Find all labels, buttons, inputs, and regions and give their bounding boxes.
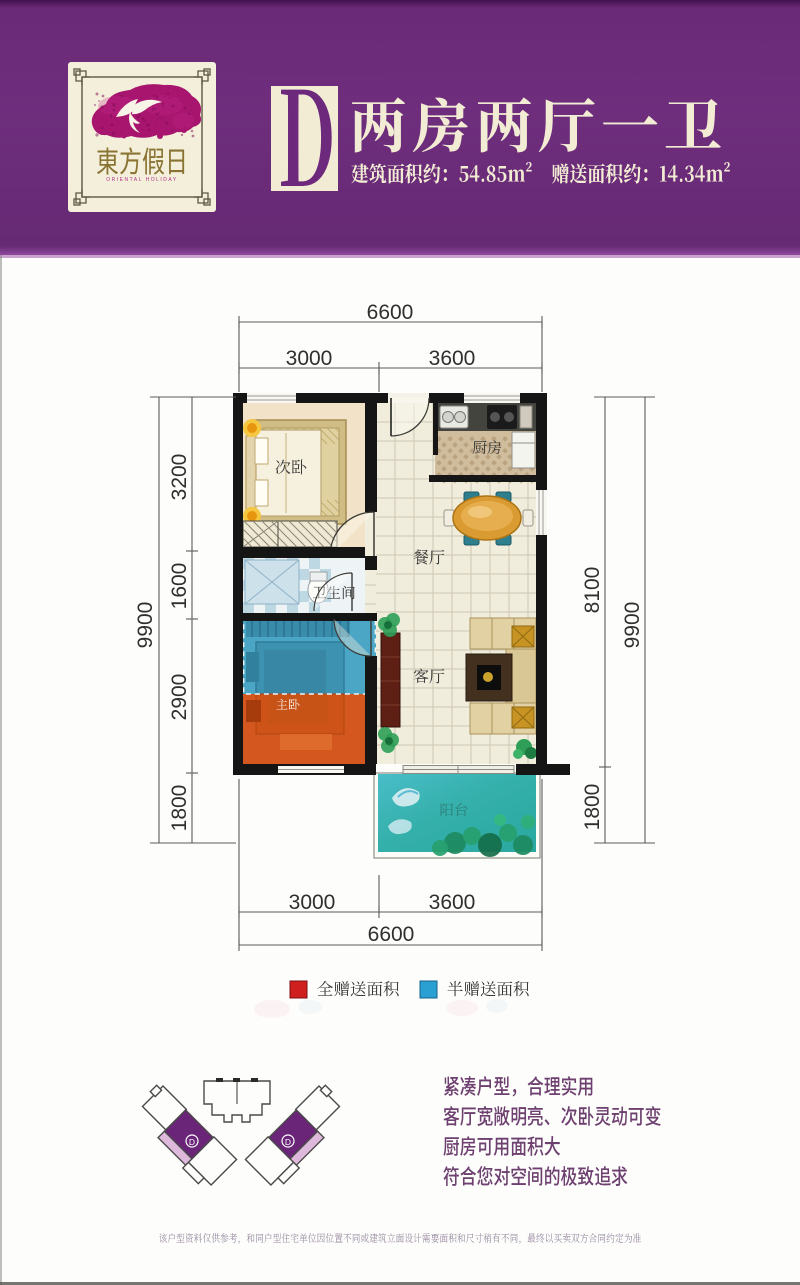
svg-text:1600: 1600	[168, 563, 191, 610]
svg-text:8100: 8100	[581, 567, 604, 614]
svg-text:餐厅: 餐厅	[413, 545, 445, 568]
svg-text:D: D	[285, 1137, 291, 1147]
svg-text:6600: 6600	[368, 923, 415, 946]
svg-text:阳台: 阳台	[440, 799, 469, 820]
svg-text:次卧: 次卧	[275, 455, 307, 478]
svg-text:全赠送面积: 全赠送面积	[317, 976, 400, 1000]
svg-text:1800: 1800	[581, 784, 604, 831]
svg-text:半赠送面积: 半赠送面积	[447, 976, 530, 1000]
svg-text:2900: 2900	[168, 674, 191, 721]
svg-text:9900: 9900	[621, 602, 644, 649]
svg-text:6600: 6600	[367, 301, 414, 324]
svg-text:9900: 9900	[134, 602, 157, 649]
svg-text:1800: 1800	[168, 785, 191, 832]
svg-text:客厅: 客厅	[413, 664, 445, 687]
svg-text:主卧: 主卧	[276, 696, 300, 713]
svg-text:厨房: 厨房	[472, 437, 502, 458]
svg-text:3000: 3000	[286, 347, 333, 370]
svg-text:3200: 3200	[168, 454, 191, 501]
svg-text:3600: 3600	[429, 347, 476, 370]
svg-text:D: D	[189, 1137, 195, 1147]
svg-text:3000: 3000	[289, 891, 336, 914]
svg-text:3600: 3600	[429, 891, 476, 914]
